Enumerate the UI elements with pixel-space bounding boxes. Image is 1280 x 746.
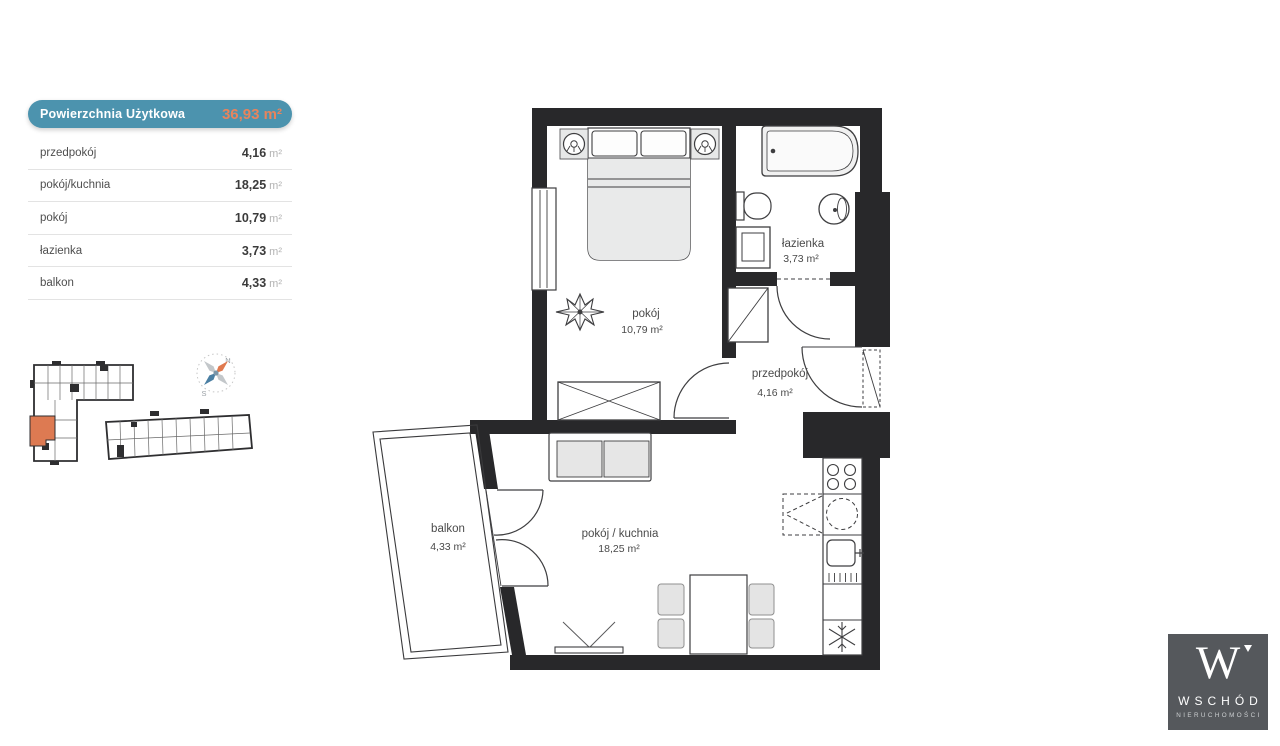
dining-table — [658, 575, 774, 654]
room-label-balkon: balkon — [431, 523, 465, 535]
room-area-value: 4,16m² — [242, 146, 282, 160]
sofa — [549, 433, 651, 481]
table-row: balkon 4,33m² — [28, 267, 292, 300]
agency-logo: W WSCHÓD NIERUCHOMOŚCI — [1168, 634, 1268, 730]
compass-center-dot — [213, 370, 218, 375]
logo-triangle-icon — [1244, 645, 1252, 652]
balcony-door-threshold — [486, 490, 501, 586]
total-area-label: Powierzchnia Użytkowa — [40, 107, 185, 121]
entry-door-arc — [802, 347, 862, 407]
compass-south-label: S — [201, 389, 206, 398]
pillow — [641, 131, 686, 156]
nightstand — [560, 129, 588, 159]
area-rows: przedpokój 4,16m² pokój/kuchnia 18,25m² … — [28, 137, 292, 300]
washing-machine — [736, 227, 770, 268]
room-label-pokoj-kuchnia: pokój / kuchnia — [582, 528, 659, 540]
wardrobe — [558, 382, 660, 420]
table-row: pokój 10,79m² — [28, 202, 292, 235]
room-label: pokój/kuchnia — [40, 179, 110, 191]
area-summary-table: Powierzchnia Użytkowa 36,93 m² przedpokó… — [28, 100, 292, 300]
floor-plan: pokój 10,79 m² łazienka 3,73 m² przedpok… — [360, 95, 900, 685]
room-label: pokój — [40, 212, 68, 224]
utility-shaft — [728, 288, 768, 342]
room-area-value: 4,33m² — [242, 276, 282, 290]
tv — [555, 622, 623, 653]
toilet — [736, 192, 771, 220]
table-row: łazienka 3,73m² — [28, 235, 292, 268]
company-name: WSCHÓD — [1173, 694, 1263, 708]
compass-icon: N S — [197, 354, 235, 398]
building-b — [106, 415, 252, 459]
room-area-value: 10,79m² — [235, 211, 282, 225]
room-area-pokoj-kuchnia: 18,25 m² — [598, 543, 640, 555]
bathtub — [762, 126, 858, 176]
chair — [658, 619, 684, 648]
plant — [556, 294, 604, 330]
company-tagline: NIERUCHOMOŚCI — [1174, 712, 1261, 719]
room-label-lazienka: łazienka — [782, 238, 825, 250]
entry-door-leaf-diagonal — [863, 350, 880, 407]
room-label: przedpokój — [40, 147, 96, 159]
window — [532, 188, 556, 290]
bed — [588, 128, 690, 260]
balcony-door-arc — [496, 540, 548, 586]
logo-monogram: W — [1196, 636, 1240, 692]
room-area-value: 3,73m² — [242, 244, 282, 258]
room-area-value: 18,25m² — [235, 178, 282, 192]
room-label-pokoj: pokój — [632, 308, 660, 320]
room-label-przedpokoj: przedpokój — [752, 368, 808, 380]
nightstand — [691, 129, 719, 159]
area-table-header: Powierzchnia Użytkowa 36,93 m² — [28, 100, 292, 128]
chair — [658, 584, 684, 615]
room-area-balkon: 4,33 m² — [430, 541, 466, 553]
balcony-door-arc — [494, 490, 543, 535]
pillow — [592, 131, 637, 156]
room-label: balkon — [40, 277, 74, 289]
chair — [749, 584, 774, 615]
room-area-lazienka: 3,73 m² — [783, 253, 819, 265]
site-plan: N S — [20, 348, 260, 478]
chair — [749, 619, 774, 648]
table-row: pokój/kuchnia 18,25m² — [28, 170, 292, 203]
bathroom-door-arc — [777, 286, 830, 339]
room-door-arc — [674, 363, 729, 418]
total-area-value: 36,93 m² — [222, 106, 282, 123]
bathroom-sink — [819, 194, 849, 224]
table-row: przedpokój 4,16m² — [28, 137, 292, 170]
room-area-przedpokoj: 4,16 m² — [757, 387, 793, 399]
room-label: łazienka — [40, 245, 82, 257]
room-area-pokoj: 10,79 m² — [621, 324, 663, 336]
